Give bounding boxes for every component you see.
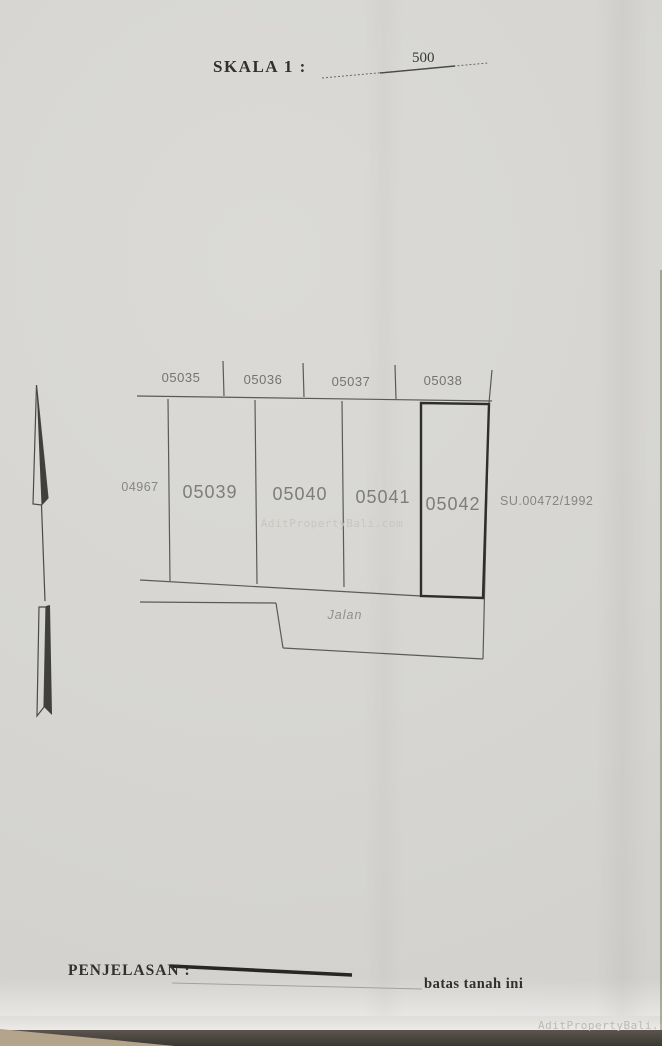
parcel-label-05036: 05036 xyxy=(244,372,283,387)
watermark-bottom-right: AditPropertyBali.com xyxy=(538,1019,662,1032)
watermark-center: AditPropertyBali.com xyxy=(261,517,403,530)
parcel-label-05041: 05041 xyxy=(355,487,410,508)
road-upper-left-line xyxy=(140,602,276,603)
road-label: Jalan xyxy=(328,608,363,622)
parcel-label-05038: 05038 xyxy=(424,373,463,388)
tick-05035-05036 xyxy=(223,361,224,396)
divider-05040-05041 xyxy=(342,401,344,587)
bottom-boundary-line xyxy=(140,580,421,596)
legend-faint-line xyxy=(172,983,422,989)
parcel-label-05040: 05040 xyxy=(272,484,327,505)
legend-boundary-sample-line xyxy=(170,966,352,975)
parcel-label-05037: 05037 xyxy=(332,374,371,389)
divider-05039-05040 xyxy=(255,400,257,584)
road-bottom-line xyxy=(283,648,483,659)
scale-underline-solid xyxy=(380,66,455,73)
tick-05037-05038 xyxy=(395,365,396,399)
divider-left-05039 xyxy=(168,399,170,581)
parcel-label-05042: 05042 xyxy=(425,494,480,515)
scale-value: 500 xyxy=(412,50,435,67)
tick-05036-05037 xyxy=(303,363,304,397)
survey-ref-label: SU.00472/1992 xyxy=(500,494,593,508)
parcel-label-05039: 05039 xyxy=(182,482,237,503)
road-step-line xyxy=(276,603,283,648)
scale-label: SKALA 1 : xyxy=(213,57,307,77)
legend-caption: batas tanah ini xyxy=(424,976,523,993)
parcel-label-04967: 04967 xyxy=(121,480,158,494)
right-boundary-line xyxy=(483,370,492,659)
parcel-label-05035: 05035 xyxy=(162,370,201,385)
top-boundary-line xyxy=(137,396,492,401)
scanned-survey-document: { "title": { "scale_label": "SKALA 1 :",… xyxy=(0,0,662,1046)
legend-label: PENJELASAN : xyxy=(68,962,191,980)
north-arrow-icon xyxy=(33,385,52,716)
